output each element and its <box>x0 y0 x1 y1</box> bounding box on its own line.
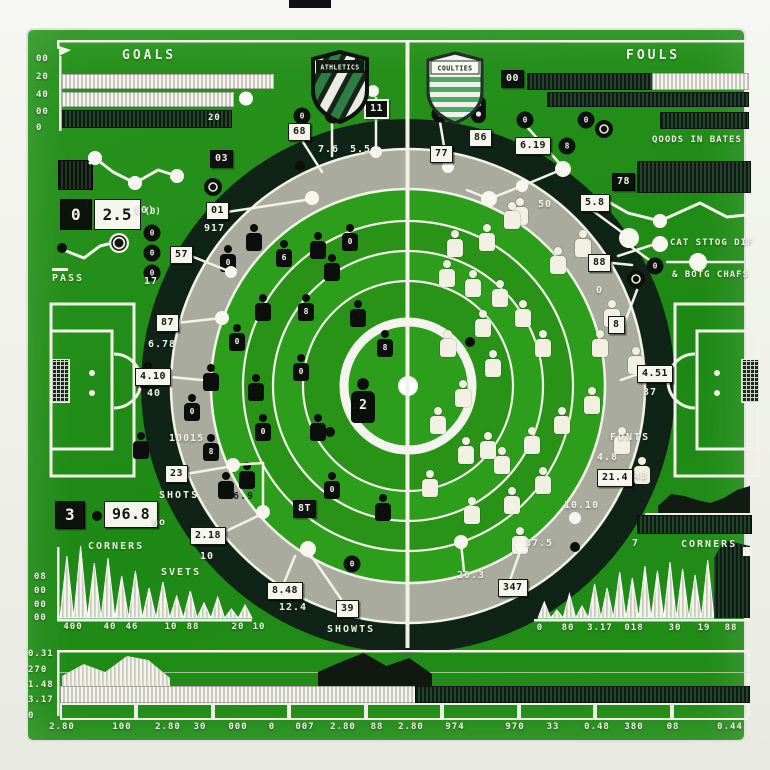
svg-text:ATHLETICS: ATHLETICS <box>320 64 359 72</box>
pitch-panel-background <box>28 30 744 740</box>
home-team-crest: ATHLETICS <box>309 48 371 126</box>
possession-block-icon <box>58 160 93 190</box>
football-stats-infographic: 0608008000082 08008000000 GOALS FOULS CO… <box>0 0 770 770</box>
away-team-crest: COULTIES <box>424 48 486 128</box>
svg-text:COULTIES: COULTIES <box>438 65 473 73</box>
top-edge-mark <box>289 0 331 8</box>
